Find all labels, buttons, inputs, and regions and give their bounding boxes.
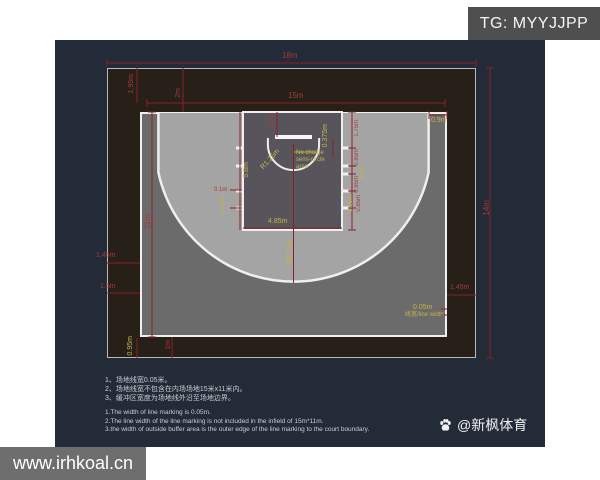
dim-hash-line: 0.05m [220, 196, 226, 213]
note-en-2: 2.The line width of the line marking is … [105, 418, 369, 426]
dim-line-width-note: 线宽/line width [405, 312, 444, 318]
credit-label: @新枫体育 [457, 415, 527, 435]
dim-key-width: 4.85m [268, 218, 287, 225]
dim-hash-depth: 0.1m [214, 187, 227, 193]
dim-bottom-buffer: 1m [165, 340, 172, 350]
watermark-site: www.irhkoal.cn [13, 453, 133, 474]
dim-key-height: 5.8m [243, 162, 250, 178]
dim-corner-three-point: 0.9m [431, 117, 447, 124]
court-infield [140, 112, 447, 337]
dim-three-point-radius: R6.75m [287, 240, 294, 265]
notes-block: 1、场地线宽0.05米。 2、场地线宽不包含在内场场地15米x11米内。 3、缓… [105, 376, 369, 435]
tg-contact-label: TG: MYYJJPP [480, 15, 589, 33]
note-en-1: 1.The width of line marking is 0.05m. [105, 409, 369, 417]
paw-icon [438, 418, 453, 433]
no-charge-note-1: No charge [296, 150, 324, 156]
dim-lane-mark-2: 0.85m [354, 149, 360, 166]
note-en-3: 3.the width of outside buffer area is th… [105, 426, 369, 434]
dim-overall-height: 14m [483, 200, 491, 216]
credit-badge: @新枫体育 [438, 415, 527, 435]
note-zh-3: 3、缓冲区宽度为场地线外沿至场地边界。 [105, 394, 369, 403]
tg-contact-badge: TG: MYYJJPP [468, 7, 600, 40]
dim-lane-mark-3: 0.4m [360, 166, 366, 179]
dim-board-to-basket: 0.375m [322, 124, 329, 147]
note-zh-2: 2、场地线宽不包含在内场场地15米x11米内。 [105, 385, 369, 394]
dim-top-buffer: 2m [175, 88, 182, 98]
note-zh-1: 1、场地线宽0.05米。 [105, 376, 369, 385]
dim-overall-width: 18m [282, 52, 298, 60]
no-charge-note-2: semi-circle [296, 157, 325, 163]
page: { "header": { "tg_label": "TG: MYYJJPP" … [0, 0, 600, 480]
dim-bottom-buffer-inner: 0.95m [127, 336, 134, 355]
dim-side-buffer-inner-right: 1.45m [450, 284, 469, 291]
dim-side-buffer-left: 1.5m [100, 283, 116, 290]
dim-lane-mark-1: 1.75m [354, 120, 360, 137]
dim-lane-mark-6: 0.85m [356, 195, 362, 212]
dim-lane-mark-4: 0.85m [354, 176, 360, 193]
dim-side-buffer-inner-left: 1.45m [96, 252, 115, 259]
dim-top-buffer-inner: 1.95m [128, 74, 135, 93]
dim-line-width: 0.05m [413, 304, 432, 311]
watermark-bar: www.irhkoal.cn [0, 447, 146, 480]
no-charge-note-3: area [296, 164, 308, 170]
dim-infield-height: 11m [144, 214, 152, 229]
dim-infield-width: 15m [288, 92, 304, 100]
dim-backboard-offset: 1.2m [268, 114, 275, 130]
dim-lane-mark-5: 0.05m [348, 195, 354, 212]
